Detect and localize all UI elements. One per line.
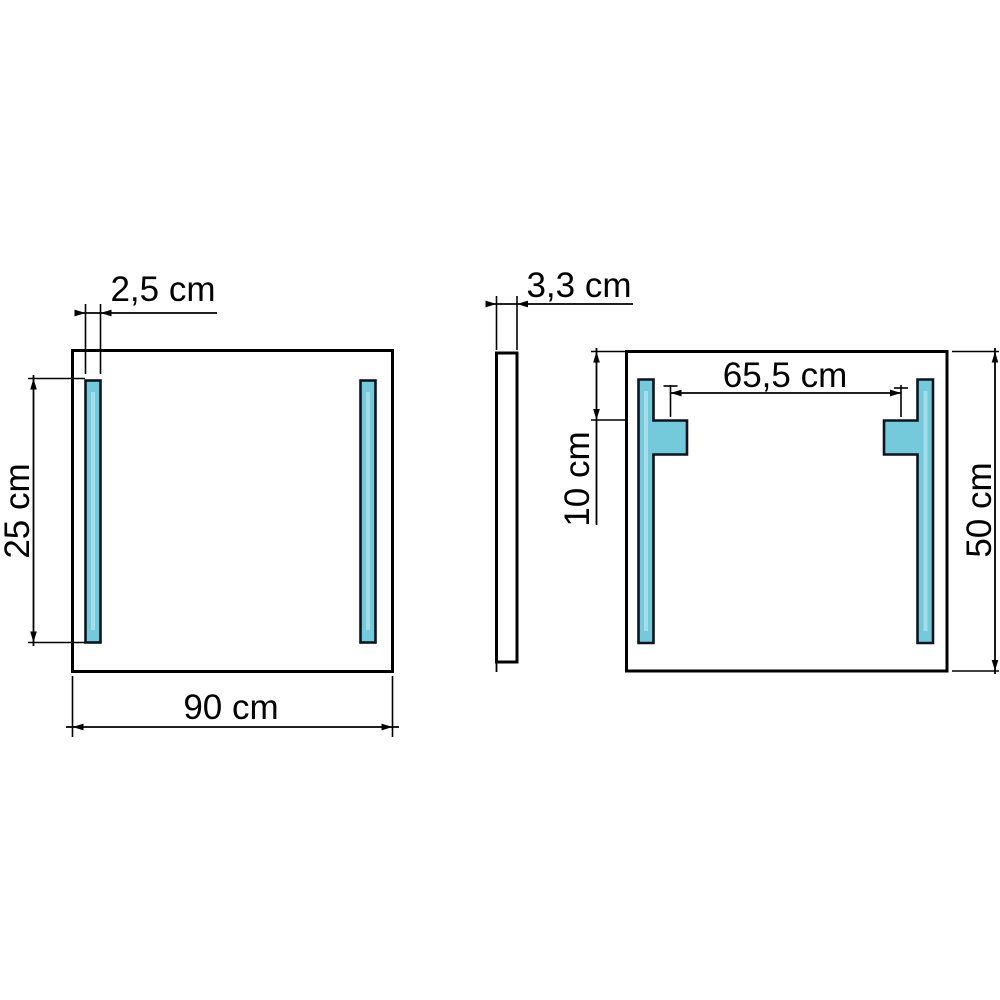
- dimension-label-bracket-spacing: 65,5 cm: [723, 356, 848, 395]
- arrowhead: [101, 310, 112, 317]
- mirror-front-outline: [73, 351, 393, 672]
- arrowhead: [593, 409, 600, 420]
- arrowhead: [486, 301, 497, 308]
- dimension-label-strip-height: 25 cm: [0, 463, 37, 558]
- arrowhead: [30, 632, 37, 643]
- dimension-label-bracket-offset: 10 cm: [558, 431, 597, 526]
- technical-drawing: 2,5 cm 25 cm 90 cm: [0, 0, 1000, 1000]
- mirror-side-outline: [497, 353, 518, 662]
- front-view: 2,5 cm 25 cm 90 cm: [0, 270, 399, 737]
- dimension-mirror-height: 50 cm: [952, 348, 999, 674]
- arrowhead: [992, 352, 999, 363]
- dimension-label-mirror-height: 50 cm: [960, 462, 999, 557]
- arrowhead: [75, 310, 86, 317]
- dimension-bracket-offset: 10 cm: [558, 348, 626, 527]
- arrowhead: [593, 352, 600, 363]
- dimension-depth: 3,3 cm: [486, 266, 634, 350]
- drawing-canvas: 2,5 cm 25 cm 90 cm: [0, 0, 1000, 1000]
- dimension-label-mirror-width: 90 cm: [183, 688, 278, 727]
- mirror-back-outline: [627, 352, 948, 672]
- arrowhead: [30, 379, 37, 390]
- dimension-label-depth: 3,3 cm: [526, 266, 631, 305]
- arrowhead: [382, 724, 393, 731]
- arrowhead: [73, 724, 84, 731]
- dimension-label-strip-width: 2,5 cm: [110, 270, 215, 309]
- arrowhead: [992, 660, 999, 671]
- back-view: 65,5 cm 10 cm 50 cm: [558, 348, 999, 674]
- dimension-mirror-width: 90 cm: [66, 676, 399, 737]
